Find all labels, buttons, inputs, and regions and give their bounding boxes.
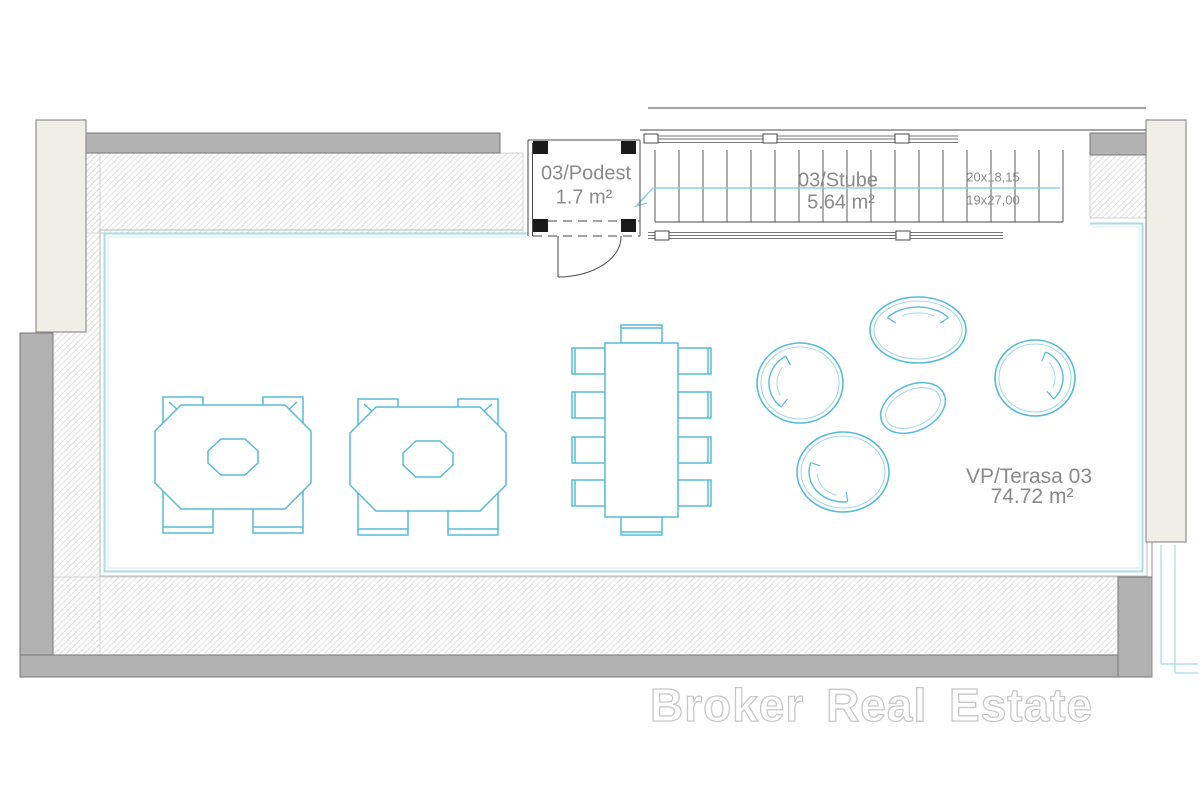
ottoman-table bbox=[872, 373, 953, 443]
floor-plan-page: Broker Real Estate 03/Podest 1.7 m² 03/S… bbox=[0, 0, 1200, 800]
round-lounge-chair bbox=[870, 297, 966, 363]
floor-plan-drawing: Broker Real Estate bbox=[0, 0, 1200, 800]
round-lounge-chair bbox=[995, 340, 1075, 416]
round-lounge-chair bbox=[757, 343, 843, 423]
stair-tread-dim-label: 19x27,00 bbox=[966, 193, 1020, 208]
stairs-name-label: 03/Stube bbox=[798, 170, 878, 193]
octagon-table-set bbox=[155, 397, 311, 533]
stair-riser-dim-label: 20x18,15 bbox=[966, 170, 1020, 185]
staircase bbox=[640, 108, 1146, 240]
round-lounge-chair bbox=[797, 432, 889, 512]
watermark-text: Broker Real Estate bbox=[650, 679, 1093, 731]
door-swing bbox=[558, 236, 621, 277]
furniture-layer bbox=[155, 297, 1075, 535]
terrace-area-label: 74.72 m² bbox=[991, 485, 1074, 509]
stairs-area-label: 5.64 m² bbox=[807, 192, 875, 215]
stair-railing-bottom bbox=[648, 231, 1003, 240]
podest-area-label: 1.7 m² bbox=[556, 187, 613, 210]
octagon-table-set bbox=[350, 399, 506, 535]
podest-name-label: 03/Podest bbox=[541, 163, 631, 186]
exterior-steps bbox=[1146, 542, 1198, 677]
stair-railing-top bbox=[644, 134, 958, 143]
dining-set bbox=[572, 325, 711, 535]
